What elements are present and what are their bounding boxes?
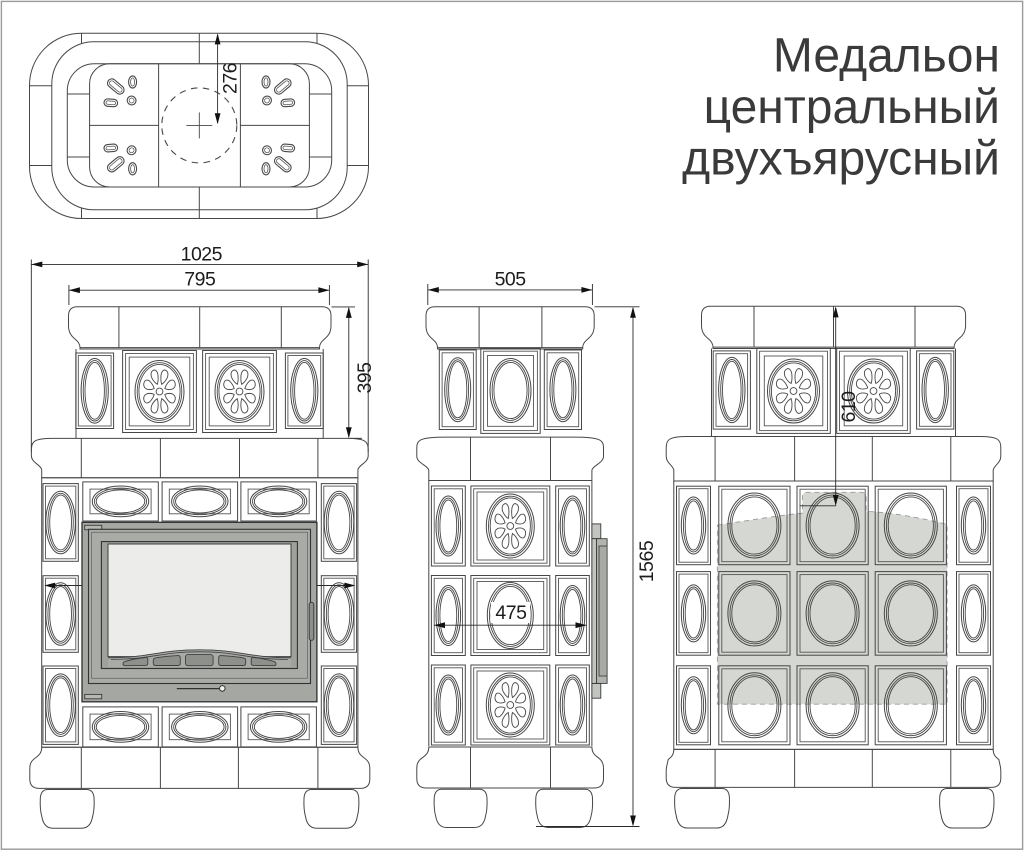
svg-text:395: 395 (354, 362, 376, 394)
svg-text:505: 505 (495, 269, 527, 291)
svg-text:276: 276 (219, 63, 241, 94)
svg-text:двухъярусный: двухъярусный (682, 133, 1000, 186)
svg-text:795: 795 (184, 269, 216, 291)
svg-text:610: 610 (838, 391, 860, 423)
svg-text:1025: 1025 (181, 244, 223, 266)
svg-text:475: 475 (495, 602, 527, 624)
svg-text:Медальон: Медальон (773, 30, 1000, 83)
svg-text:1565: 1565 (636, 540, 658, 582)
svg-text:центральный: центральный (704, 81, 1000, 134)
